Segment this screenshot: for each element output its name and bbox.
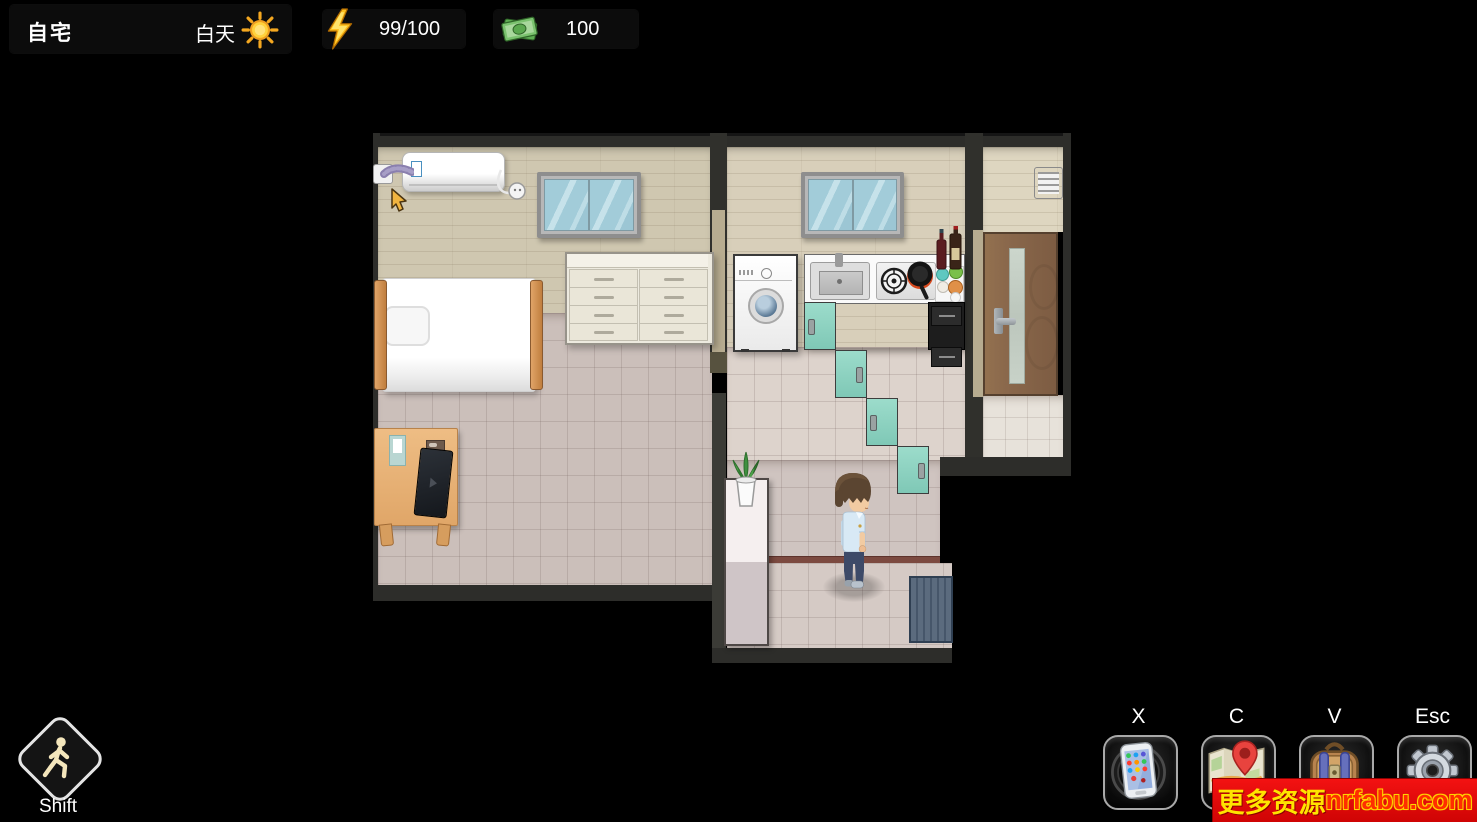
dresser[interactable] — [565, 252, 714, 345]
ac-vent-line — [409, 184, 497, 186]
walk-toggle[interactable]: Shift — [10, 718, 106, 820]
window-pane — [808, 179, 853, 231]
teal-cabinet-door[interactable] — [804, 302, 836, 350]
wm-glass — [755, 295, 777, 317]
nightstand-leg — [379, 523, 394, 546]
drawer — [639, 305, 708, 324]
time-label: 白天 — [195, 18, 235, 47]
mouse-cursor — [391, 188, 411, 212]
bed-post-foot — [530, 280, 543, 390]
drawer — [569, 323, 638, 341]
ac-hose — [380, 160, 414, 186]
drawer — [639, 269, 708, 288]
wm-foot — [741, 349, 749, 352]
player-character — [830, 468, 876, 594]
money-icon — [498, 12, 542, 46]
ad-banner-site: nrfabu.com — [1325, 785, 1472, 816]
location-label: 自宅 — [27, 17, 73, 47]
box-lid — [429, 443, 437, 447]
nightstand-leg — [436, 523, 451, 546]
drawer — [569, 305, 638, 324]
bed-post-head — [374, 280, 387, 390]
game-screen: 自宅 白天 99/100 100 — [0, 0, 1477, 822]
black-drawer — [931, 347, 962, 367]
black-drawer-unit[interactable] — [928, 302, 965, 350]
faucet — [835, 253, 843, 267]
sun-icon — [241, 11, 279, 49]
divider-wall-base — [710, 352, 727, 373]
door-handle-lever[interactable] — [996, 318, 1016, 325]
bedroom-window — [537, 172, 641, 238]
pillow — [384, 306, 430, 346]
teal-cabinet-door[interactable] — [897, 446, 929, 494]
dresser-top — [567, 254, 708, 268]
laptop[interactable] — [414, 447, 454, 518]
bed[interactable] — [374, 278, 542, 392]
lightning-icon — [325, 8, 355, 50]
walking-person-icon — [36, 734, 80, 780]
energy-value: 99/100 — [379, 18, 440, 41]
washing-machine[interactable] — [733, 254, 798, 352]
entry-floor[interactable] — [983, 395, 1063, 457]
teal-cabinet-door[interactable] — [866, 398, 898, 446]
money-value: 100 — [566, 18, 599, 41]
sink-drain — [837, 279, 842, 284]
entry-divider-wood — [973, 230, 983, 397]
phone-button[interactable] — [1103, 735, 1178, 810]
dresser-drawer — [569, 269, 636, 286]
entry-door[interactable] — [983, 232, 1058, 396]
kitchen-sink[interactable] — [810, 262, 870, 300]
wall-vent — [1034, 167, 1063, 199]
drawer — [639, 323, 708, 341]
kitchen-window — [801, 172, 904, 238]
window-pane — [544, 179, 589, 231]
ad-banner-prefix: 更多资源 — [1217, 781, 1325, 820]
window-pane — [589, 179, 634, 231]
smartphone-icon — [1105, 737, 1172, 804]
wm-dial — [761, 268, 772, 279]
money-panel: 100 — [494, 10, 638, 48]
location-panel: 自宅 白天 — [10, 5, 291, 53]
drawer — [639, 287, 708, 306]
energy-panel: 99/100 — [323, 10, 465, 48]
hotkey-label-v: V — [1299, 705, 1370, 729]
drawer — [569, 269, 638, 288]
kitchen-counter[interactable] — [804, 254, 963, 348]
doormat[interactable] — [909, 576, 953, 643]
wm-panel-line — [735, 280, 792, 281]
outer-wall-right — [1063, 133, 1071, 476]
ac-cable — [493, 168, 533, 204]
air-conditioner[interactable] — [402, 152, 505, 192]
hotkey-label-x: X — [1103, 705, 1174, 729]
gas-stove[interactable] — [876, 262, 936, 300]
walk-toggle-label: Shift — [10, 796, 106, 818]
hotkey-label-c: C — [1201, 705, 1272, 729]
wine-bottles — [933, 226, 967, 270]
bedroom-wall-bottom — [373, 585, 712, 601]
notebook-page — [393, 439, 402, 453]
door-glass — [1009, 248, 1025, 384]
door-decor — [1029, 264, 1059, 310]
wm-foot — [782, 349, 790, 352]
entry-wall-bottom — [940, 457, 1071, 476]
potted-plant — [727, 450, 765, 510]
window-pane — [853, 179, 898, 231]
play-icon — [429, 478, 437, 489]
wm-door — [748, 288, 784, 324]
hallway-wall-bottom — [712, 648, 952, 663]
drawer — [569, 287, 638, 306]
door-decor — [1025, 316, 1059, 370]
teal-cabinet-door[interactable] — [835, 350, 867, 398]
hotkey-label-esc: Esc — [1397, 705, 1468, 729]
nightstand[interactable] — [374, 428, 456, 546]
ad-banner: 更多资源nrfabu.com — [1213, 779, 1477, 822]
entry-divider-wall — [965, 133, 983, 460]
notebook — [389, 435, 406, 466]
wm-buttons — [739, 270, 753, 275]
black-drawer — [931, 306, 962, 326]
